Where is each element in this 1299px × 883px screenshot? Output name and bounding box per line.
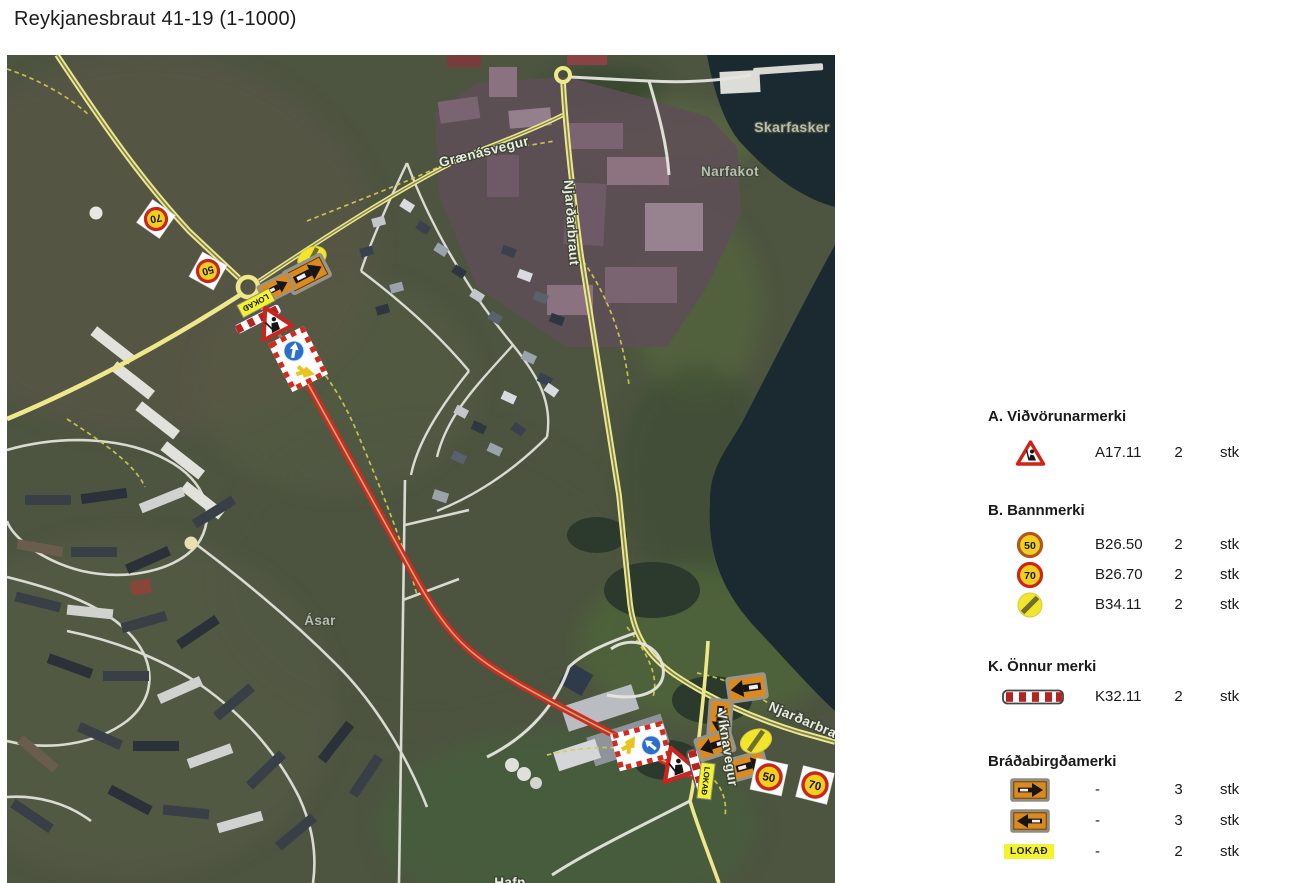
legend-code: A17.11 <box>1072 444 1152 461</box>
legend-row: 70 B26.70 2 stk <box>988 560 1288 589</box>
legend-code: B26.50 <box>1072 536 1152 553</box>
legend-qty: 3 <box>1152 781 1205 798</box>
legend-heading-temporary: Bráðabirgðamerki <box>988 752 1288 771</box>
speed-70-text: 70 <box>149 211 163 225</box>
place-label-skarfasker: Skarfasker <box>754 119 830 135</box>
legend-qty: 2 <box>1152 566 1205 583</box>
legend-row: - 3 stk <box>988 806 1288 835</box>
legend-row: A17.11 2 stk <box>988 438 1288 467</box>
legend-code: B26.70 <box>1072 566 1152 583</box>
legend-unit: stk <box>1205 444 1250 461</box>
place-label-narfakot: Narfakot <box>701 164 759 179</box>
sign-legend: A. Viðvörunarmerki A17.11 2 stk B. Bannm… <box>988 407 1288 866</box>
legend-code: B34.11 <box>1072 596 1152 613</box>
arrow-right-sign-icon <box>988 778 1072 802</box>
legend-qty: 2 <box>1152 843 1205 860</box>
speed-50-sign-icon: 50 <box>988 531 1072 559</box>
page-title: Reykjanesbraut 41-19 (1-1000) <box>14 8 297 31</box>
svg-text:70: 70 <box>1024 570 1036 582</box>
legend-unit: stk <box>1205 566 1250 583</box>
legend-code: - <box>1072 781 1152 798</box>
map-canvas: 70 50 LOKAÐ <box>7 55 835 883</box>
lokad-sign-icon: LOKAÐ <box>988 844 1072 859</box>
legend-qty: 2 <box>1152 536 1205 553</box>
legend-unit: stk <box>1205 812 1250 829</box>
legend-qty: 2 <box>1152 688 1205 705</box>
speed-50-sign-2: 50 <box>750 758 788 796</box>
speed-70-sign-icon: 70 <box>988 561 1072 589</box>
legend-unit: stk <box>1205 536 1250 553</box>
dome-yellow <box>185 537 198 550</box>
legend-qty: 2 <box>1152 444 1205 461</box>
legend-code: - <box>1072 843 1152 860</box>
legend-qty: 3 <box>1152 812 1205 829</box>
place-label-asar: Ásar <box>304 613 336 628</box>
dome <box>90 207 103 220</box>
barrier-board-icon <box>988 689 1072 705</box>
legend-unit: stk <box>1205 781 1250 798</box>
legend-row: K32.11 2 stk <box>988 682 1288 711</box>
legend-code: K32.11 <box>1072 688 1152 705</box>
legend-heading-prohibition: B. Bannmerki <box>988 501 1288 520</box>
legend-heading-other: K. Önnur merki <box>988 657 1288 676</box>
legend-code: - <box>1072 812 1152 829</box>
arrow-left-sign-icon <box>988 809 1072 833</box>
satellite-map: 70 50 LOKAÐ <box>7 55 835 883</box>
end-restriction-sign-icon <box>988 592 1072 618</box>
legend-row: LOKAÐ - 2 stk <box>988 837 1288 866</box>
legend-heading-warning: A. Viðvörunarmerki <box>988 407 1288 426</box>
legend-row: 50 B26.50 2 stk <box>988 530 1288 559</box>
legend-unit: stk <box>1205 596 1250 613</box>
svg-text:50: 50 <box>1024 540 1036 552</box>
road-label-hafn: Hafn <box>494 875 526 883</box>
legend-row: - 3 stk <box>988 775 1288 804</box>
legend-unit: stk <box>1205 688 1250 705</box>
legend-qty: 2 <box>1152 596 1205 613</box>
roadwork-sign-icon <box>988 439 1072 467</box>
legend-unit: stk <box>1205 843 1250 860</box>
arrow-left-sign <box>727 673 768 702</box>
legend-row: B34.11 2 stk <box>988 590 1288 619</box>
